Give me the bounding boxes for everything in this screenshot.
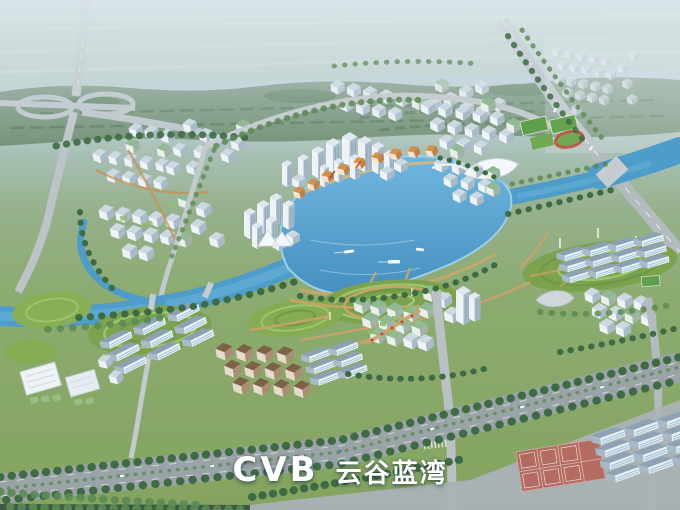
project-logo: CVB云谷蓝湾 bbox=[0, 450, 680, 490]
logo-chinese-name: 云谷蓝湾 bbox=[336, 459, 448, 489]
aerial-masterplan-rendering: CVB云谷蓝湾 bbox=[0, 0, 680, 510]
rendering-canvas bbox=[0, 0, 680, 510]
campus-sports-field bbox=[641, 275, 660, 287]
logo-cvb-text: CVB bbox=[232, 450, 318, 490]
